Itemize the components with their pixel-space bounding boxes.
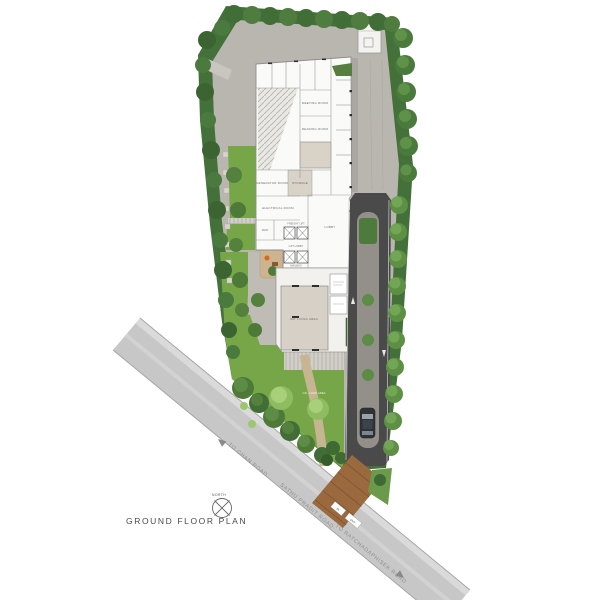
north-label: NORTH [212, 493, 226, 497]
north-compass-icon: NORTH [212, 493, 232, 518]
median-tree [362, 334, 374, 346]
entrance-verge [368, 468, 392, 505]
ground-floor-plan-canvas: GD - LAWN AREA [0, 0, 600, 600]
building-lower-wing: GD. LIVING AREA [276, 268, 356, 352]
median-planting [359, 218, 377, 244]
median-tree [362, 294, 374, 306]
page-title: GROUND FLOOR PLAN [126, 516, 247, 526]
room-label-living-area: GD. LIVING AREA [290, 317, 318, 321]
room-label-maid: MAID [262, 228, 269, 232]
room-label-mailbox: MAILBOX [290, 264, 302, 268]
median-tree [362, 369, 374, 381]
room-label-freight-lift: FREIGHT LIFT [287, 222, 305, 226]
room-label-lobby: LOBBY [324, 225, 335, 229]
room-label-electrical: ELECTRICAL ROOM [262, 206, 294, 210]
room-label-lift-lobby: LIFT LOBBY [289, 244, 304, 248]
service-rooms [330, 274, 347, 314]
striped-walkway [284, 350, 344, 370]
room-label-meeting: MEETING ROOM [302, 101, 329, 105]
driveway-loop [345, 193, 391, 466]
room-beige [300, 142, 331, 168]
site-plan-drawing: GD - LAWN AREA [0, 0, 600, 600]
lawn-area-label: GD - LAWN AREA [303, 391, 326, 395]
room-label-reading: READING ROOM [302, 127, 329, 131]
room-label-generator: GENERATOR ROOM [256, 181, 288, 185]
building-shadow [352, 58, 358, 192]
room-label-storage: STORAGE [292, 181, 308, 185]
car [360, 408, 375, 438]
site-area: GD - LAWN AREA [195, 5, 418, 528]
